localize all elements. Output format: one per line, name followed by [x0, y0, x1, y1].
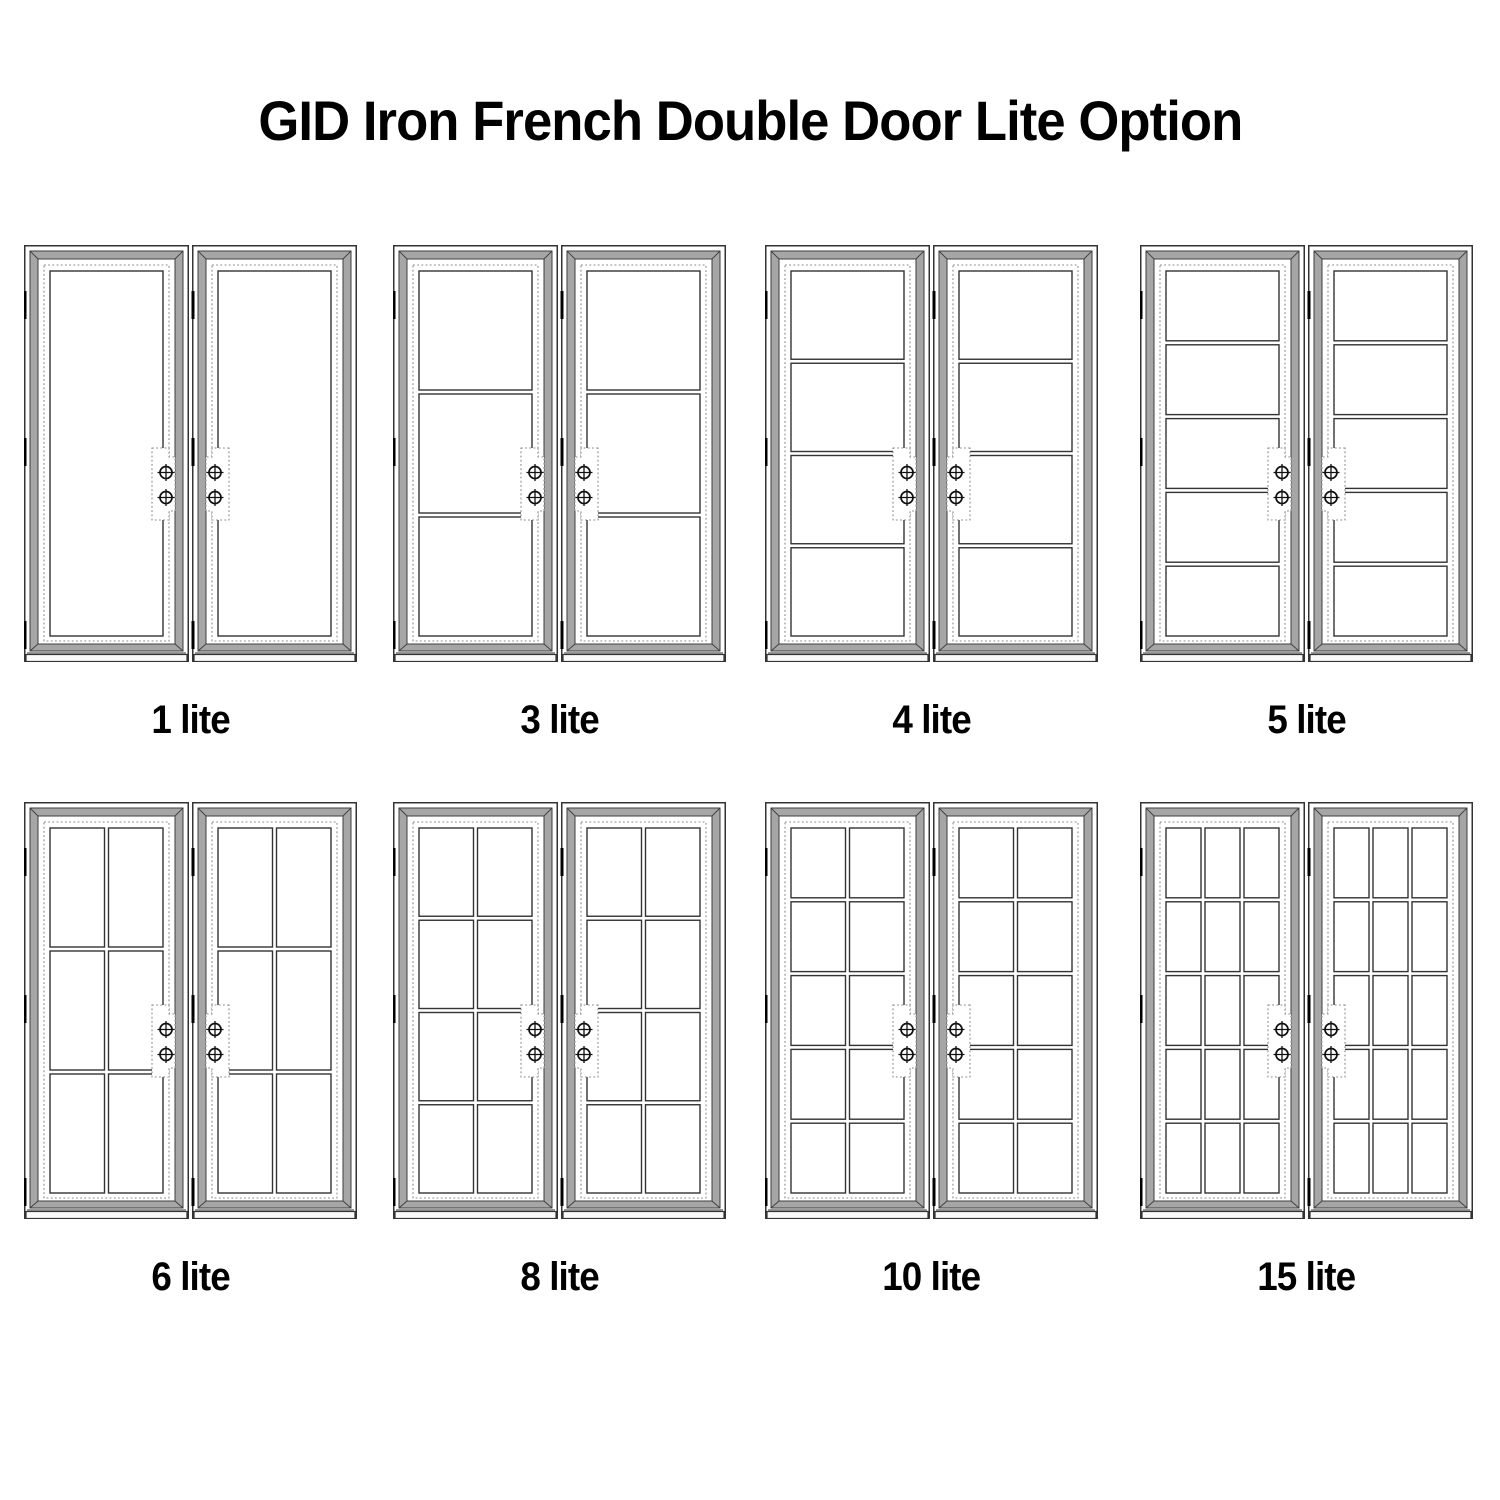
- glass-panes: [218, 271, 331, 636]
- hinge-mark-icon: [1308, 621, 1311, 649]
- door-leaf-left: [765, 246, 929, 662]
- handle-plate: [521, 448, 544, 520]
- door-option-10-lite: 10 lite: [765, 802, 1098, 1300]
- glass-pane: [1412, 828, 1447, 898]
- glass-panes: [1166, 828, 1279, 1193]
- glass-panes: [1334, 828, 1447, 1193]
- handle-plate: [947, 1005, 970, 1077]
- hinge-mark-icon: [192, 995, 195, 1023]
- hinge-mark-icon: [24, 995, 27, 1023]
- threshold: [395, 1210, 556, 1219]
- glass-pane: [959, 828, 1014, 898]
- threshold: [935, 653, 1096, 662]
- handle-plate: [947, 448, 970, 520]
- double-door-diagram: [1140, 245, 1473, 662]
- glass-panes: [419, 271, 532, 636]
- glass-pane: [50, 828, 105, 947]
- hinge-mark-icon: [765, 291, 768, 319]
- glass-pane: [1166, 419, 1279, 489]
- hinge-mark-icon: [393, 848, 396, 876]
- door-leaf-left: [1140, 803, 1304, 1219]
- hinge-mark-icon: [1308, 1178, 1311, 1206]
- glass-pane: [587, 920, 642, 1008]
- hinge-mark-icon: [393, 438, 396, 466]
- page-title: GID Iron French Double Door Lite Option: [0, 88, 1500, 153]
- double-door-diagram: [765, 245, 1098, 662]
- glass-pane: [1018, 1049, 1073, 1119]
- glass-pane: [791, 828, 846, 898]
- glass-pane: [1373, 828, 1408, 898]
- glass-pane: [1166, 902, 1201, 972]
- door-leaf-left: [765, 803, 929, 1219]
- hinge-mark-icon: [24, 621, 27, 649]
- glass-pane: [791, 1123, 846, 1193]
- double-door-diagram: [393, 245, 726, 662]
- glass-pane: [1205, 828, 1240, 898]
- door-leaf-right: [192, 803, 357, 1219]
- door-option-15-lite: 15 lite: [1140, 802, 1473, 1300]
- glass-pane: [1166, 492, 1279, 562]
- hinge-mark-icon: [1308, 995, 1311, 1023]
- threshold: [1310, 1210, 1471, 1219]
- double-door-diagram: [765, 802, 1098, 1219]
- glass-pane: [959, 548, 1072, 636]
- glass-pane: [959, 271, 1072, 359]
- glass-pane: [587, 517, 700, 636]
- glass-pane: [50, 271, 163, 636]
- glass-pane: [959, 363, 1072, 451]
- glass-pane: [478, 920, 533, 1008]
- glass-pane: [419, 828, 474, 916]
- hinge-mark-icon: [1308, 438, 1311, 466]
- door-leaf-right: [1308, 246, 1473, 662]
- glass-panes: [1166, 271, 1279, 636]
- hinge-mark-icon: [1140, 621, 1143, 649]
- glass-pane: [1166, 271, 1279, 341]
- handle-plate: [893, 448, 916, 520]
- hinge-mark-icon: [393, 995, 396, 1023]
- threshold: [1310, 653, 1471, 662]
- hinge-mark-icon: [393, 621, 396, 649]
- option-label: 5 lite: [1140, 698, 1473, 743]
- glass-pane: [1166, 828, 1201, 898]
- hinge-mark-icon: [24, 438, 27, 466]
- handle-plate: [152, 448, 175, 520]
- double-door-diagram: [24, 802, 357, 1219]
- threshold: [935, 1210, 1096, 1219]
- glass-pane: [1373, 976, 1408, 1046]
- glass-pane: [419, 920, 474, 1008]
- glass-pane: [1205, 1049, 1240, 1119]
- handle-plate: [206, 448, 229, 520]
- glass-pane: [1373, 902, 1408, 972]
- handle-plate: [1322, 448, 1345, 520]
- threshold: [26, 1210, 187, 1219]
- glass-pane: [646, 920, 701, 1008]
- glass-panes: [1334, 271, 1447, 636]
- door-option-8-lite: 8 lite: [393, 802, 726, 1300]
- double-door-diagram: [393, 802, 726, 1219]
- hinge-mark-icon: [561, 1178, 564, 1206]
- glass-pane: [850, 902, 905, 972]
- glass-pane: [791, 363, 904, 451]
- hinge-mark-icon: [933, 621, 936, 649]
- glass-pane: [50, 1074, 105, 1193]
- glass-pane: [587, 394, 700, 513]
- glass-pane: [1166, 1049, 1201, 1119]
- double-door-svg: [1140, 245, 1473, 662]
- threshold: [1142, 653, 1303, 662]
- handle-plate: [206, 1005, 229, 1077]
- hinge-mark-icon: [393, 291, 396, 319]
- glass-pane: [1166, 1123, 1201, 1193]
- hinge-mark-icon: [561, 848, 564, 876]
- glass-pane: [1412, 1049, 1447, 1119]
- glass-pane: [277, 951, 332, 1070]
- hinge-mark-icon: [1140, 291, 1143, 319]
- door-option-4-lite: 4 lite: [765, 245, 1098, 743]
- glass-pane: [277, 828, 332, 947]
- door-leaf-right: [1308, 803, 1473, 1219]
- glass-pane: [1205, 902, 1240, 972]
- door-leaf-right: [933, 246, 1098, 662]
- option-label: 4 lite: [765, 698, 1098, 743]
- hinge-mark-icon: [765, 621, 768, 649]
- option-label: 1 lite: [24, 698, 357, 743]
- threshold: [563, 1210, 724, 1219]
- hinge-mark-icon: [192, 848, 195, 876]
- glass-pane: [850, 828, 905, 898]
- glass-pane: [218, 828, 273, 947]
- door-option-5-lite: 5 lite: [1140, 245, 1473, 743]
- glass-panes: [50, 271, 163, 636]
- hinge-mark-icon: [24, 291, 27, 319]
- threshold: [194, 1210, 355, 1219]
- hinge-mark-icon: [1140, 438, 1143, 466]
- handle-plate: [575, 448, 598, 520]
- double-door-svg: [393, 245, 726, 662]
- hinge-mark-icon: [1140, 848, 1143, 876]
- threshold: [767, 1210, 928, 1219]
- hinge-mark-icon: [24, 1178, 27, 1206]
- hinge-mark-icon: [765, 848, 768, 876]
- glass-pane: [1205, 1123, 1240, 1193]
- door-option-1-lite: 1 lite: [24, 245, 357, 743]
- handle-plate: [575, 1005, 598, 1077]
- hinge-mark-icon: [561, 291, 564, 319]
- glass-pane: [1334, 566, 1447, 636]
- threshold: [194, 653, 355, 662]
- double-door-svg: [24, 802, 357, 1219]
- glass-pane: [1334, 345, 1447, 415]
- glass-pane: [587, 271, 700, 390]
- handle-plate: [893, 1005, 916, 1077]
- double-door-diagram: [24, 245, 357, 662]
- option-label: 10 lite: [765, 1255, 1098, 1300]
- threshold: [395, 653, 556, 662]
- option-label: 6 lite: [24, 1255, 357, 1300]
- glass-pane: [419, 1013, 474, 1101]
- glass-pane: [419, 1105, 474, 1193]
- hinge-mark-icon: [561, 438, 564, 466]
- door-leaf-left: [24, 803, 188, 1219]
- glass-pane: [1334, 492, 1447, 562]
- glass-pane: [1244, 1123, 1279, 1193]
- door-leaf-left: [393, 803, 557, 1219]
- glass-pane: [587, 828, 642, 916]
- glass-pane: [646, 828, 701, 916]
- glass-panes: [587, 271, 700, 636]
- glass-pane: [1334, 828, 1369, 898]
- glass-pane: [1334, 902, 1369, 972]
- glass-pane: [587, 1105, 642, 1193]
- hinge-mark-icon: [192, 438, 195, 466]
- glass-pane: [1412, 902, 1447, 972]
- double-door-diagram: [1140, 802, 1473, 1219]
- glass-pane: [1018, 976, 1073, 1046]
- hinge-mark-icon: [933, 995, 936, 1023]
- door-leaf-left: [24, 246, 188, 662]
- hinge-mark-icon: [933, 1178, 936, 1206]
- glass-pane: [959, 902, 1014, 972]
- glass-pane: [791, 976, 846, 1046]
- glass-pane: [1334, 271, 1447, 341]
- door-leaf-right: [561, 246, 726, 662]
- hinge-mark-icon: [933, 291, 936, 319]
- glass-pane: [1373, 1123, 1408, 1193]
- glass-pane: [1244, 902, 1279, 972]
- double-door-svg: [1140, 802, 1473, 1219]
- glass-pane: [1412, 976, 1447, 1046]
- glass-pane: [1412, 1123, 1447, 1193]
- glass-pane: [791, 456, 904, 544]
- glass-pane: [646, 1105, 701, 1193]
- glass-pane: [1166, 345, 1279, 415]
- glass-pane: [1244, 828, 1279, 898]
- glass-pane: [419, 394, 532, 513]
- hinge-mark-icon: [393, 1178, 396, 1206]
- handle-plate: [521, 1005, 544, 1077]
- glass-pane: [1018, 902, 1073, 972]
- double-door-svg: [24, 245, 357, 662]
- glass-pane: [1334, 1123, 1369, 1193]
- option-label: 3 lite: [393, 698, 726, 743]
- door-leaf-right: [561, 803, 726, 1219]
- glass-pane: [959, 1123, 1014, 1193]
- hinge-mark-icon: [933, 438, 936, 466]
- glass-pane: [1166, 566, 1279, 636]
- hinge-mark-icon: [192, 621, 195, 649]
- option-label: 8 lite: [393, 1255, 726, 1300]
- option-label: 15 lite: [1140, 1255, 1473, 1300]
- glass-pane: [419, 517, 532, 636]
- lite-options-diagram: { "title": "GID Iron French Double Door …: [0, 0, 1500, 1500]
- threshold: [563, 653, 724, 662]
- double-door-svg: [393, 802, 726, 1219]
- glass-pane: [1205, 976, 1240, 1046]
- glass-pane: [1166, 976, 1201, 1046]
- hinge-mark-icon: [765, 438, 768, 466]
- glass-pane: [478, 1105, 533, 1193]
- handle-plate: [1268, 1005, 1291, 1077]
- threshold: [767, 653, 928, 662]
- handle-plate: [1322, 1005, 1345, 1077]
- glass-pane: [1018, 828, 1073, 898]
- glass-pane: [277, 1074, 332, 1193]
- door-leaf-left: [393, 246, 557, 662]
- glass-pane: [850, 1123, 905, 1193]
- hinge-mark-icon: [192, 1178, 195, 1206]
- glass-pane: [1334, 419, 1447, 489]
- door-option-3-lite: 3 lite: [393, 245, 726, 743]
- glass-pane: [109, 1074, 164, 1193]
- glass-pane: [959, 456, 1072, 544]
- hinge-mark-icon: [765, 995, 768, 1023]
- glass-pane: [791, 902, 846, 972]
- handle-plate: [152, 1005, 175, 1077]
- hinge-mark-icon: [24, 848, 27, 876]
- door-leaf-right: [192, 246, 357, 662]
- threshold: [1142, 1210, 1303, 1219]
- glass-pane: [791, 548, 904, 636]
- door-leaf-right: [933, 803, 1098, 1219]
- glass-pane: [791, 1049, 846, 1119]
- glass-pane: [791, 271, 904, 359]
- door-leaf-left: [1140, 246, 1304, 662]
- hinge-mark-icon: [1140, 1178, 1143, 1206]
- double-door-svg: [765, 802, 1098, 1219]
- glass-pane: [1373, 1049, 1408, 1119]
- door-option-6-lite: 6 lite: [24, 802, 357, 1300]
- glass-pane: [478, 828, 533, 916]
- glass-pane: [646, 1013, 701, 1101]
- hinge-mark-icon: [1308, 848, 1311, 876]
- hinge-mark-icon: [192, 291, 195, 319]
- handle-plate: [1268, 448, 1291, 520]
- hinge-mark-icon: [1308, 291, 1311, 319]
- glass-pane: [50, 951, 105, 1070]
- hinge-mark-icon: [561, 995, 564, 1023]
- glass-pane: [218, 271, 331, 636]
- glass-pane: [1018, 1123, 1073, 1193]
- hinge-mark-icon: [561, 621, 564, 649]
- glass-pane: [218, 1074, 273, 1193]
- hinge-mark-icon: [1140, 995, 1143, 1023]
- double-door-svg: [765, 245, 1098, 662]
- glass-pane: [109, 828, 164, 947]
- glass-pane: [419, 271, 532, 390]
- hinge-mark-icon: [933, 848, 936, 876]
- hinge-mark-icon: [765, 1178, 768, 1206]
- threshold: [26, 653, 187, 662]
